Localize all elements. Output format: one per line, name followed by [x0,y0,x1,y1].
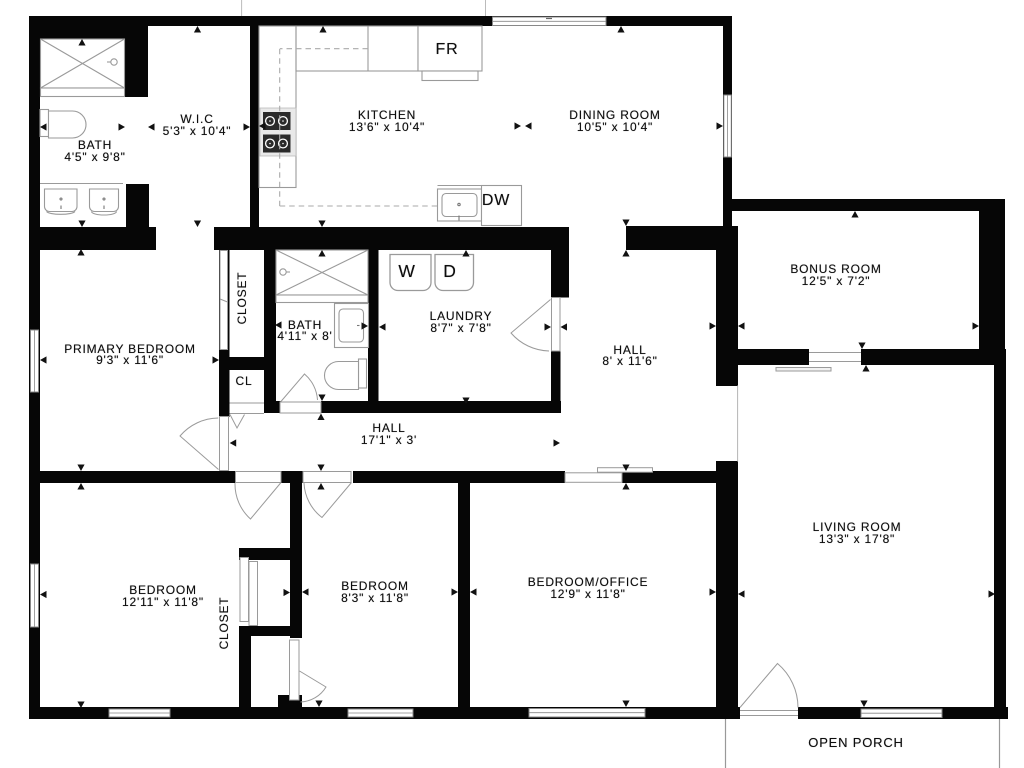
svg-text:OPEN PORCH: OPEN PORCH [808,735,903,750]
svg-text:12'11" x 11'8": 12'11" x 11'8" [122,595,204,609]
svg-text:13'3" x 17'8": 13'3" x 17'8" [819,532,895,546]
svg-text:8'7" x 7'8": 8'7" x 7'8" [430,321,491,335]
svg-text:CL: CL [236,374,253,388]
svg-text:CLOSET: CLOSET [235,272,249,325]
svg-text:4'5" x 9'8": 4'5" x 9'8" [64,150,125,164]
svg-text:DW: DW [482,192,510,209]
svg-text:FR: FR [436,41,459,58]
svg-text:8'3" x 11'8": 8'3" x 11'8" [341,591,409,605]
svg-text:CLOSET: CLOSET [217,597,231,650]
svg-text:W: W [398,261,415,281]
svg-text:17'1" x 3': 17'1" x 3' [361,433,417,447]
svg-text:13'6" x 10'4": 13'6" x 10'4" [349,120,425,134]
svg-text:9'3" x 11'6": 9'3" x 11'6" [96,353,164,367]
svg-text:8' x 11'6": 8' x 11'6" [602,354,657,368]
svg-text:4'11" x 8': 4'11" x 8' [277,329,332,343]
svg-text:10'5" x 10'4": 10'5" x 10'4" [577,120,653,134]
svg-text:D: D [443,261,456,281]
svg-text:5'3" x 10'4": 5'3" x 10'4" [163,124,232,138]
svg-text:12'5" x 7'2": 12'5" x 7'2" [802,274,871,288]
svg-text:12'9" x 11'8": 12'9" x 11'8" [550,587,625,601]
